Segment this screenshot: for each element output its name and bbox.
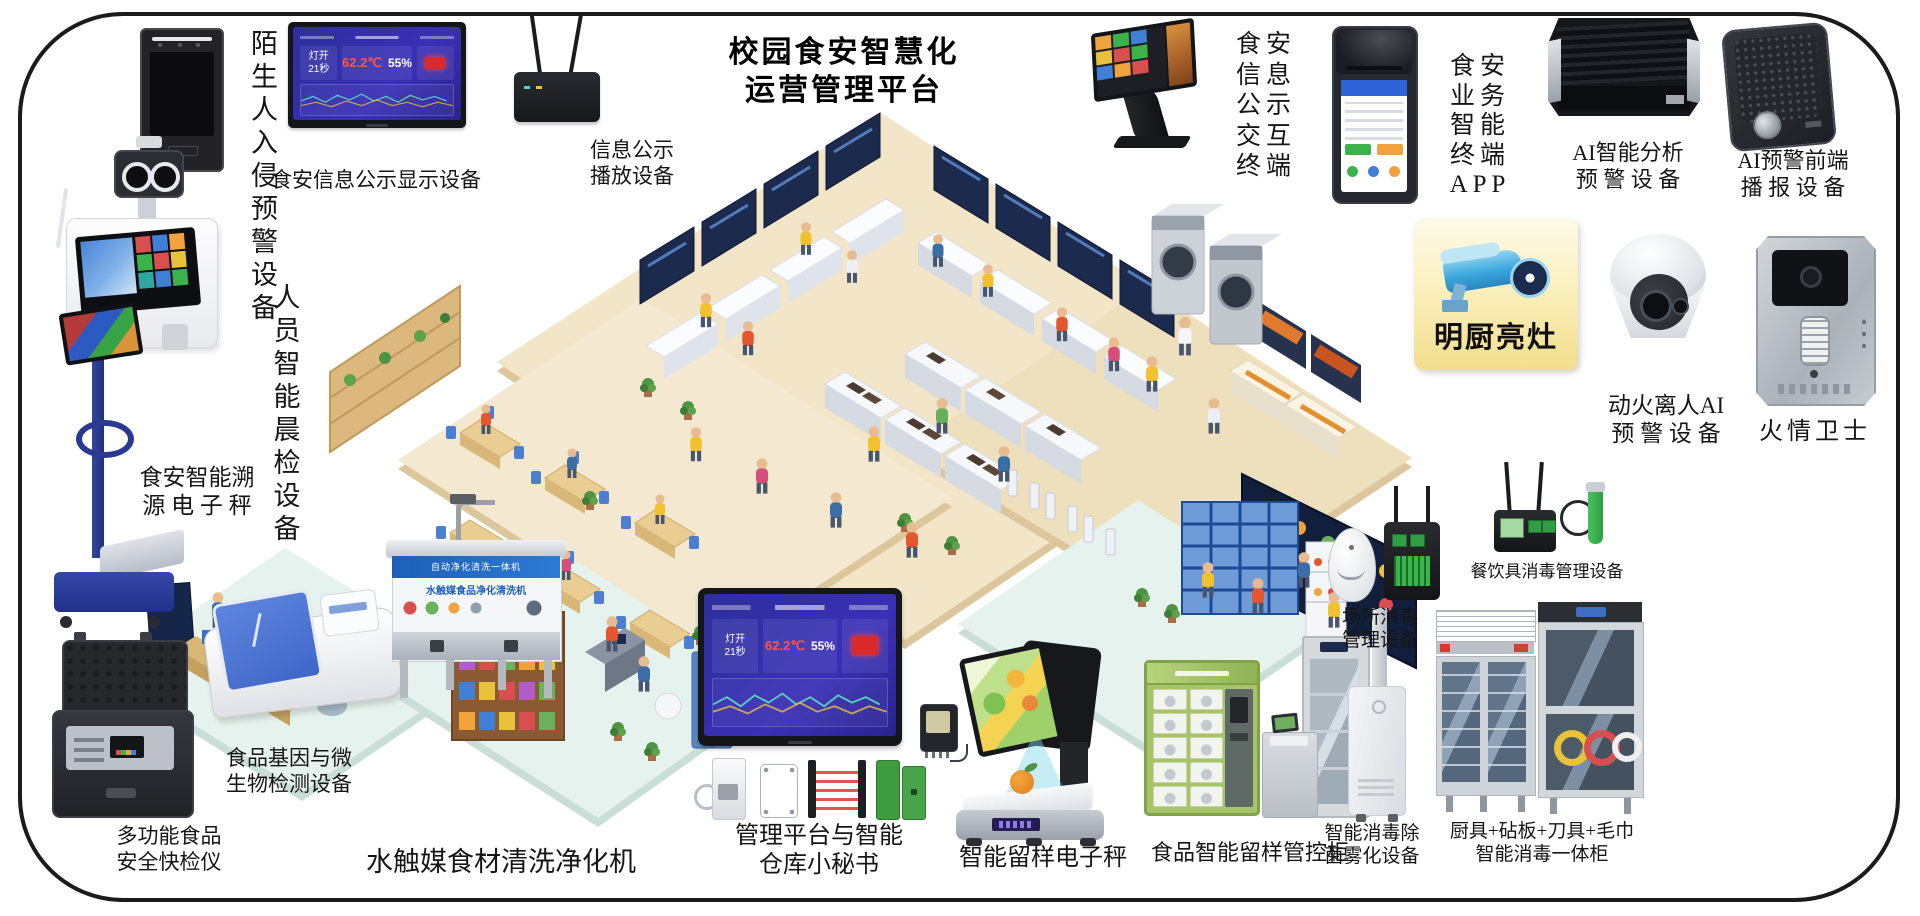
- camera-lens: [122, 162, 152, 192]
- status-lamp: [1514, 644, 1528, 652]
- antenna-icon: [1536, 462, 1544, 514]
- mini-screen: [110, 736, 144, 758]
- pos-app-label: 食安 业务 智能 终端 APP: [1448, 52, 1512, 200]
- traceability-scale-label: 食安智能溯 源 电 子 秤: [122, 464, 272, 520]
- detector-printer: [319, 589, 380, 638]
- dashboard-topbar: [300, 34, 454, 41]
- washer-banner-top: 自动净化清洗一体机: [392, 556, 560, 578]
- monitor-logo: [366, 124, 388, 127]
- rack-lines: [1488, 662, 1526, 782]
- fire-ai-camera-device: [1588, 234, 1728, 350]
- tableware-disinfect-router-device: [1494, 462, 1558, 558]
- cctv-camera-icon: [1444, 240, 1548, 306]
- port-tag: [1666, 95, 1684, 104]
- ethernet-port: [1542, 520, 1556, 533]
- tableware-disinfect-label: 餐饮具消毒管理设备: [1462, 562, 1632, 583]
- washer-leg: [446, 660, 454, 690]
- valve-knob: [430, 640, 444, 652]
- router-leds: [524, 86, 564, 89]
- wooden-wall: [330, 286, 460, 452]
- ethernet-port: [1392, 534, 1407, 547]
- washer-lower: [392, 632, 560, 660]
- scale-screen: [58, 302, 143, 366]
- laser-beams-icon: [816, 768, 858, 810]
- temperature-value: 62.2℃: [342, 55, 382, 71]
- ethernet-port: [1410, 534, 1425, 547]
- sensor-board-gadget: [902, 766, 926, 820]
- side-buttons: [1862, 318, 1866, 348]
- faucet-head: [450, 494, 476, 504]
- test-slots: [74, 732, 104, 762]
- info-broadcast-device: [508, 14, 604, 130]
- venue-disinfect-sensor-device: [1328, 528, 1376, 602]
- veggie-icons: [402, 600, 552, 616]
- disinfection-cabinet-a-device: [1436, 610, 1534, 814]
- dashboard-alert-card: [417, 46, 454, 80]
- fire-ai-label: 动火离人AI 预 警 设 备: [1592, 392, 1740, 448]
- light-label: 灯开: [309, 51, 329, 62]
- management-platform-label: 管理平台与智能 仓库小秘书: [716, 822, 922, 881]
- antenna-icon: [530, 14, 543, 76]
- corner-bracket: [1687, 39, 1700, 104]
- light-value: 21秒: [725, 647, 746, 658]
- kiosk-screen: [1091, 18, 1197, 103]
- gene-detector-label: 食品基因与微 生物检测设备: [218, 746, 360, 797]
- dashboard-screen: 灯开 21秒 62.2℃ 55%: [293, 27, 461, 120]
- washer-leg: [498, 660, 506, 690]
- dashboard-alert-card: [842, 619, 888, 673]
- heatsink-ridges: [1557, 21, 1692, 86]
- terminal-block: [1394, 556, 1430, 586]
- brand-badge: [1440, 644, 1450, 652]
- sample-retention-scale-device: [952, 644, 1128, 840]
- camera-dots-icon: [156, 43, 200, 47]
- nozzle-dot: [1810, 370, 1818, 378]
- tablet-logo: [788, 741, 812, 744]
- dispenser-detail: [718, 784, 738, 800]
- pressure-gauge: [1800, 316, 1830, 366]
- glass-section-upper: [1546, 630, 1634, 706]
- device-screen: [150, 52, 214, 136]
- dashboard-chart: [712, 678, 888, 727]
- control-screen: [1230, 697, 1248, 723]
- page-title: 校园食安智慧化 运营管理平台: [722, 34, 966, 109]
- cabinet-leg: [1550, 798, 1557, 814]
- screen-photo-tile: [80, 237, 137, 297]
- speaker-tag: [1805, 120, 1821, 127]
- binocular-camera-icon: [114, 150, 184, 198]
- fogger-label: 智能消毒除 菌雾化设备: [1318, 822, 1426, 868]
- mingchu-liangzao-card: 明厨亮灶: [1414, 218, 1578, 370]
- food-washer-device: 自动净化清洗一体机 水触媒食品净化清洗机: [386, 500, 566, 700]
- paper-slot: [1346, 66, 1402, 70]
- scale-handle: [76, 420, 134, 458]
- fire-guardian-device: [1756, 236, 1876, 406]
- humidity-value: 55%: [811, 639, 835, 653]
- confirm-button: [1345, 144, 1371, 155]
- disinfect-cabinet-label: 厨具+砧板+刀具+毛巾 智能消毒一体柜: [1436, 820, 1648, 866]
- rapid-test-case-device: [52, 640, 190, 820]
- warehouse-plate-gadget: [760, 764, 798, 818]
- disinfection-cabinet-b-device: [1538, 602, 1642, 814]
- control-column: [1225, 689, 1253, 807]
- fogger-button: [1372, 700, 1386, 714]
- ethernet-port: [1528, 520, 1542, 533]
- optical-lens-icon: [1672, 298, 1689, 315]
- kiosk-base: [1113, 136, 1192, 148]
- food-photo: [1166, 22, 1193, 86]
- washer-leg: [400, 660, 408, 698]
- poster-canvas: 校园食安智慧化 运营管理平台 陌生 人入 侵预 警设 备 灯开 21秒 62.2…: [0, 0, 1920, 916]
- fogger-vents: [1358, 776, 1394, 796]
- management-platform-tablet: 灯开 21秒 62.2℃ 55%: [698, 588, 902, 746]
- thermal-lens-icon: [1640, 290, 1672, 322]
- wheel-icon: [148, 616, 160, 628]
- wand-body: [1588, 486, 1603, 544]
- antenna-icon: [1504, 462, 1512, 514]
- app-icon: [1368, 166, 1379, 177]
- humidity-value: 55%: [388, 56, 412, 70]
- sensor-display: [926, 711, 950, 733]
- valve-knob: [504, 640, 518, 652]
- fire-guardian-label: 火情卫士: [1750, 418, 1880, 447]
- caster-wheel: [1356, 814, 1366, 822]
- antenna-icon: [569, 12, 584, 74]
- sample-windows: [1153, 689, 1223, 807]
- header-text-band: [1175, 671, 1229, 676]
- info-display-label: 食安信息公示显示设备: [268, 168, 484, 194]
- laser-post: [808, 760, 816, 818]
- app-icon: [1389, 166, 1400, 177]
- laser-post: [858, 760, 866, 818]
- screen-tiles: [63, 307, 139, 361]
- rack-lines: [1442, 662, 1480, 782]
- light-value: 21秒: [308, 64, 329, 75]
- info-display-monitor: 灯开 21秒 62.2℃ 55%: [288, 22, 466, 128]
- handheld-pos-device: [1332, 26, 1416, 202]
- antenna-icon: [1394, 486, 1398, 526]
- menu-tiles: [1095, 26, 1167, 97]
- light-label: 灯开: [725, 634, 745, 645]
- orange-fruit-icon: [1010, 770, 1034, 794]
- router-green-screen: [1500, 518, 1524, 538]
- alert-indicator: [852, 636, 877, 655]
- sensor-slot: [1337, 567, 1365, 580]
- warehouse-dispenser-gadget: [700, 758, 746, 820]
- device-light-strip: [152, 37, 212, 41]
- screen-app-tiles: [135, 232, 195, 293]
- ai-broadcast-label: AI预警前端 播 报 设 备: [1714, 148, 1872, 202]
- cabinet-leg: [1446, 796, 1453, 812]
- corner-bracket: [1548, 39, 1561, 104]
- ai-broadcast-speaker-device: [1721, 22, 1837, 153]
- speaker-grille-icon: [1734, 33, 1823, 124]
- board-chip: [911, 789, 917, 795]
- title-line2: 运营管理平台: [722, 72, 966, 110]
- cabinet-leg: [1480, 796, 1487, 812]
- wheel-icon: [60, 616, 72, 628]
- cabinet-vent-top: [1436, 610, 1536, 642]
- sensor-dot: [1349, 545, 1354, 550]
- cart-sink: [1270, 736, 1308, 746]
- secondary-button: [1377, 144, 1403, 155]
- sample-cabinet-green-device: [1144, 660, 1260, 816]
- cabinet-leg: [1518, 796, 1525, 812]
- app-icon: [1347, 166, 1358, 177]
- weight-led-display: [992, 818, 1040, 831]
- sensor-pins: [925, 752, 951, 758]
- dashboard-topbar: [712, 602, 888, 613]
- temperature-value: 62.2℃: [765, 638, 805, 654]
- towel-roll: [1612, 732, 1642, 762]
- mingchu-label: 明厨亮灶: [1414, 314, 1578, 356]
- cabinet-leg: [1624, 798, 1631, 814]
- kiosk-label: 食安 信息 公示 交互 终端: [1234, 30, 1298, 183]
- rapid-tester-label: 多功能食品 安全快检仪: [102, 824, 236, 875]
- scale-pole: [92, 358, 104, 558]
- app-text-rows: [1345, 102, 1403, 140]
- title-line1: 校园食安智慧化: [722, 34, 966, 72]
- caster-wheel: [1388, 814, 1398, 822]
- washer-leg: [544, 660, 552, 698]
- info-broadcast-label: 信息公示 播放设备: [578, 138, 686, 189]
- camera-lens: [150, 162, 180, 192]
- laptop-icon: [1271, 713, 1299, 734]
- panel-screen: [1576, 607, 1606, 617]
- wand-clip: [1586, 482, 1605, 492]
- dashboard-env-card: 62.2℃ 55%: [763, 619, 836, 673]
- sensor-board-gadget: [876, 760, 900, 820]
- washer-label: 水触媒食材清洗净化机: [336, 846, 666, 879]
- gene-microbe-detector-device: [199, 581, 402, 723]
- ai-analysis-label: AI智能分析 预 警 设 备: [1556, 140, 1700, 194]
- washer-banner-name: 水触媒食品净化清洗机: [392, 582, 560, 597]
- interactive-kiosk-device: [1090, 22, 1214, 162]
- dashboard-screen: 灯开 21秒 62.2℃ 55%: [704, 594, 896, 736]
- cabinet-header: [1147, 663, 1257, 685]
- dashboard-chart: [300, 84, 454, 116]
- antenna-icon: [1426, 486, 1430, 526]
- scale-base: [54, 572, 174, 612]
- laser-barrier-gadget: [808, 760, 866, 818]
- case-handle: [106, 788, 136, 798]
- dashboard-env-card: 62.2℃ 55%: [342, 46, 412, 80]
- ai-analysis-box-device: [1548, 18, 1700, 116]
- case-lid-foam: [62, 640, 188, 718]
- dashboard-light-card: 灯开 21秒: [300, 46, 337, 80]
- food-ad-screen: [964, 648, 1057, 752]
- dispense-slot: [1230, 733, 1248, 741]
- disinfect-wand-device: [1560, 482, 1612, 550]
- alert-indicator: [425, 57, 446, 69]
- guardian-vent: [1778, 384, 1850, 394]
- sample-scale-label: 智能留样电子秤: [948, 844, 1138, 873]
- app-header: [1341, 80, 1407, 96]
- router-body: [514, 72, 600, 122]
- camera-cap: [136, 136, 162, 148]
- venue-disinfect-router-device: [1384, 486, 1444, 602]
- dashboard-light-card: 灯开 21秒: [712, 619, 758, 673]
- venue-disinfect-label: 场所消毒 管理设备: [1334, 606, 1426, 652]
- guardian-lens-icon: [1800, 266, 1822, 288]
